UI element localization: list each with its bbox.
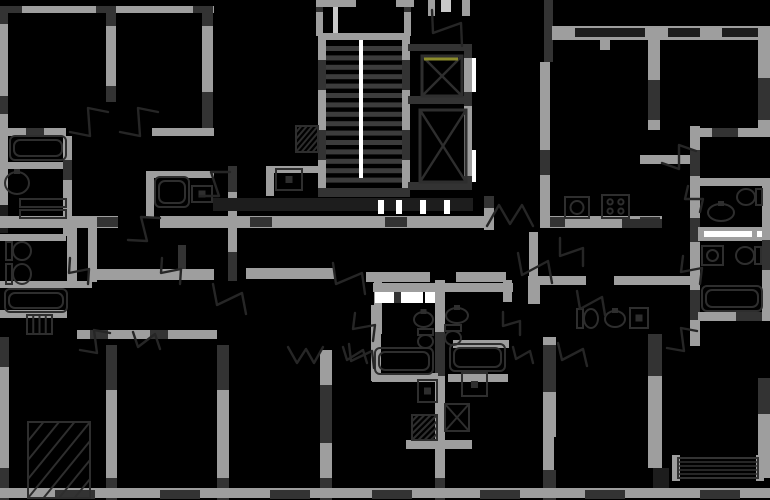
wall-segment: [88, 269, 214, 280]
wall-segment: [318, 60, 326, 90]
stove-icon: [602, 195, 629, 218]
wall-segment: [0, 8, 8, 24]
stair-tread: [326, 168, 402, 173]
wall-segment: [402, 33, 410, 196]
wall-segment: [480, 490, 520, 499]
door-swing-icon: [513, 347, 533, 363]
double-door-swing-icon: [288, 347, 323, 363]
sink-icon: [414, 312, 433, 327]
wall-segment: [318, 188, 410, 197]
wall-segment: [448, 374, 508, 382]
wall-segment: [758, 78, 770, 120]
wall-segment: [217, 345, 229, 390]
sink-faucet-icon: [421, 309, 427, 314]
hatch-line: [412, 415, 425, 428]
wall-segment: [67, 225, 77, 288]
floor-plan-canvas: [0, 0, 770, 500]
wall-segment: [0, 8, 8, 233]
elevator-shafts: [420, 56, 466, 182]
wall-segment: [178, 245, 186, 271]
wall-segment: [540, 150, 550, 175]
wall-segment: [372, 490, 412, 499]
door-opening: [420, 200, 426, 214]
stair-tread: [326, 178, 402, 183]
wall-segment: [648, 334, 662, 376]
wall-segment: [270, 490, 310, 499]
wall-segment: [762, 240, 770, 270]
bathtub-icon: [706, 290, 758, 307]
bathtub-icon: [454, 348, 501, 367]
bathtub-icon: [159, 181, 185, 203]
wall-segment: [668, 28, 700, 37]
wall-segment: [575, 28, 645, 37]
wall-segment: [648, 80, 660, 120]
stair-tread: [326, 121, 402, 126]
washer-icon: [571, 201, 584, 214]
wall-segment: [106, 8, 116, 26]
wall-segment: [0, 281, 92, 288]
washer-icon: [702, 246, 723, 265]
toilet-icon: [737, 189, 755, 205]
wall-segment: [540, 276, 586, 285]
wall-segment: [402, 60, 410, 90]
stove-burner: [608, 199, 613, 204]
staircase: [326, 40, 402, 183]
door-swing-icon: [432, 10, 462, 46]
hatch-line: [296, 126, 307, 139]
door-opening: [704, 231, 752, 237]
wall-segment: [0, 96, 8, 114]
wall-segment: [228, 252, 237, 281]
wall-segment: [396, 0, 414, 7]
wall-segment: [246, 268, 334, 279]
wall-segment: [0, 234, 66, 241]
wall-segment: [540, 62, 550, 228]
wall-segment: [758, 378, 770, 414]
wall-segment: [318, 130, 326, 160]
wall-segment: [698, 178, 770, 186]
toilet-icon: [755, 247, 761, 264]
accents-layer: [424, 59, 758, 478]
wall-segment: [700, 490, 740, 499]
door-opening: [425, 292, 435, 303]
wall-segment: [318, 33, 410, 40]
wall-segment: [320, 385, 332, 443]
stove-burner: [618, 199, 623, 204]
stair-tread: [326, 93, 402, 98]
sink-faucet-icon: [454, 305, 460, 310]
stair-tread: [326, 102, 402, 107]
door-swing-icon: [577, 291, 605, 315]
wall-segment: [503, 280, 512, 302]
wall-segment: [385, 217, 407, 227]
bathtub-icon: [379, 352, 429, 370]
door-opening: [444, 200, 450, 214]
counter-bar: [20, 199, 66, 207]
louver-strip: [678, 458, 758, 478]
sink-faucet-icon: [14, 169, 20, 174]
door-swing-icon: [70, 108, 108, 136]
door-opening: [378, 200, 384, 214]
wall-segment: [394, 292, 401, 303]
door-swing-icon: [213, 284, 246, 314]
door-swing-icon: [558, 343, 587, 366]
stair-tread: [326, 140, 402, 145]
wall-segment: [0, 162, 66, 169]
floor-plan-viewport: [0, 0, 770, 500]
door-swing-icon: [560, 238, 583, 266]
wall-segment: [228, 166, 237, 192]
door-swing-icon: [343, 347, 367, 363]
wall-segment: [152, 128, 214, 136]
sink-icon: [605, 311, 625, 327]
sink-icon: [5, 172, 29, 194]
wall-segment: [96, 217, 118, 227]
toilet-icon: [577, 309, 583, 328]
bathtub-icon: [9, 293, 63, 308]
wall-segment: [63, 160, 72, 180]
sink-icon: [708, 204, 734, 221]
door-opening: [472, 150, 476, 182]
stair-tread: [326, 65, 402, 70]
stair-tread: [326, 131, 402, 136]
service-box-icon: [286, 176, 293, 183]
wall-segment: [26, 128, 44, 136]
wall-segment: [585, 490, 625, 499]
wall-segment: [402, 130, 410, 160]
hatch-line: [307, 139, 318, 152]
door-opening: [396, 200, 402, 214]
wall-segment: [318, 33, 326, 196]
wall-segment: [543, 345, 556, 392]
wall-segment: [316, 0, 356, 7]
stair-stringer: [359, 40, 363, 178]
wall-segment: [441, 0, 451, 12]
door-swing-icon: [333, 263, 365, 294]
stair-tread: [326, 46, 402, 51]
wall-segment: [250, 217, 272, 227]
door-swing-icon: [503, 312, 520, 335]
wall-segment: [202, 8, 213, 26]
toilet-icon: [756, 189, 762, 205]
bathtub-icon: [14, 140, 62, 156]
wall-segment: [435, 332, 445, 376]
stair-tread: [326, 159, 402, 164]
toilet-icon: [6, 242, 12, 260]
stove-burner: [618, 209, 623, 214]
wall-segment: [106, 86, 116, 102]
wall-segment: [484, 196, 494, 208]
wall-segment: [160, 490, 200, 499]
wall-segment: [528, 276, 540, 304]
stove-burner: [608, 209, 613, 214]
hatch-line: [28, 422, 90, 498]
wall-segment: [464, 44, 472, 58]
sink-icon: [446, 308, 468, 323]
toilet-icon: [13, 242, 31, 260]
wall-segment: [690, 150, 700, 176]
sink-faucet-icon: [612, 308, 618, 313]
toilet-icon: [584, 309, 598, 328]
wall-segment: [462, 0, 470, 16]
wall-segment: [146, 171, 154, 217]
wall-segment: [406, 440, 472, 449]
service-box-icon: [424, 388, 431, 395]
toilet-icon: [736, 247, 754, 264]
wall-segment: [456, 272, 506, 282]
toilet-icon: [418, 335, 433, 348]
wall-segment: [544, 0, 553, 62]
wall-segment: [106, 345, 117, 390]
stair-tread: [326, 55, 402, 60]
stair-tread: [326, 149, 402, 154]
wall-segment: [0, 337, 9, 367]
door-swing-icon: [128, 217, 160, 241]
wall-segment: [640, 155, 698, 164]
stair-tread: [326, 74, 402, 79]
wall-segment: [160, 216, 486, 228]
door-opening: [472, 58, 476, 92]
wall-segment: [712, 128, 738, 137]
sink-faucet-icon: [718, 201, 724, 206]
stair-tread: [326, 112, 402, 117]
wall-segment: [213, 198, 473, 211]
service-box-icon: [636, 315, 643, 322]
service-box-icon: [471, 381, 478, 388]
wall-segment: [614, 276, 690, 285]
stair-tread: [326, 84, 402, 89]
hatch-line: [28, 422, 44, 441]
washer-icon: [707, 250, 718, 261]
wall-segment: [600, 40, 610, 50]
hatch-line: [28, 422, 59, 460]
counter-bar: [622, 219, 662, 228]
wall-segment: [722, 28, 760, 37]
